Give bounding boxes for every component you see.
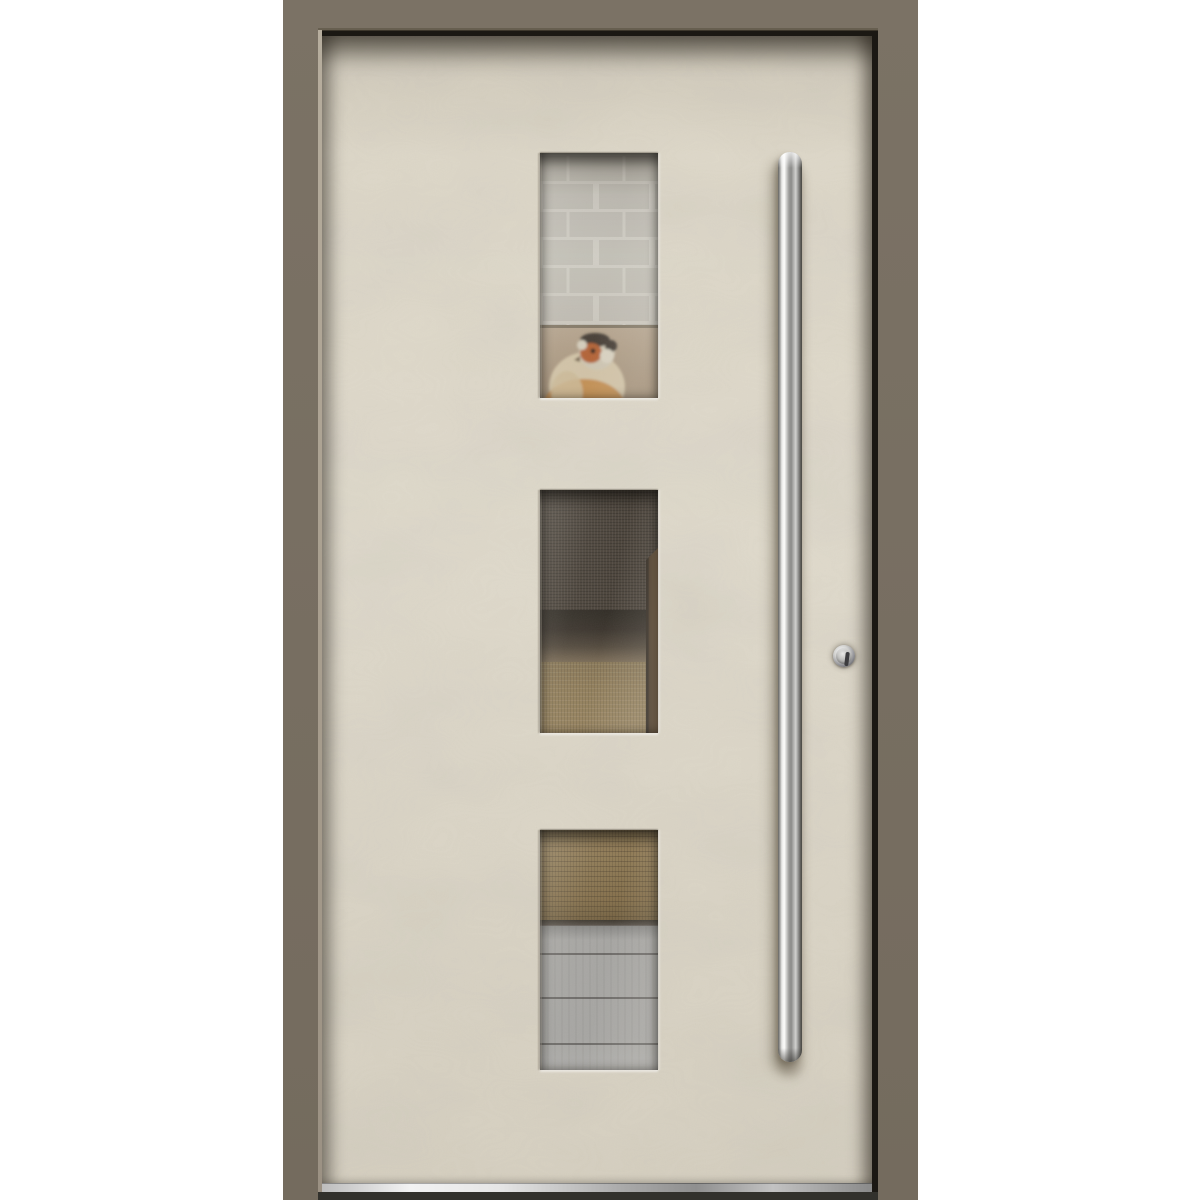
glass-glare (540, 153, 658, 398)
carpet (540, 662, 658, 733)
brick-wall-shading (540, 153, 658, 328)
glass-panel-top (540, 153, 658, 398)
glass-glare (540, 490, 658, 733)
pull-handle-bar (778, 152, 802, 1062)
carpet-woven (540, 830, 658, 922)
plush-goldfinch-bird (540, 153, 658, 398)
cushion-ledge (540, 325, 658, 398)
plank-gap-line (540, 1043, 658, 1045)
sofa-fabric (540, 490, 658, 616)
glass-panel-middle (540, 490, 658, 733)
glass-glare (540, 830, 658, 1070)
glass-grain (540, 153, 658, 398)
glass-grain (540, 830, 658, 1070)
door-product-photo (0, 0, 1200, 1200)
plank-gap-line (540, 997, 658, 999)
reflection-blur-band (540, 610, 658, 666)
keyhole-slot (844, 652, 850, 666)
carpet-floor-seam (540, 920, 658, 927)
threshold-shadow-strip (318, 1192, 878, 1200)
lock-cylinder (833, 645, 855, 667)
plank-gap-line (540, 953, 658, 955)
interior-door-edge (646, 548, 658, 733)
glass-grain (540, 490, 658, 733)
brick-wall (540, 153, 658, 398)
glass-panel-bottom (540, 830, 658, 1070)
lock-cylinder-face (836, 648, 852, 664)
floorboards (540, 926, 658, 1070)
frame-top-inner-edge (318, 28, 878, 31)
